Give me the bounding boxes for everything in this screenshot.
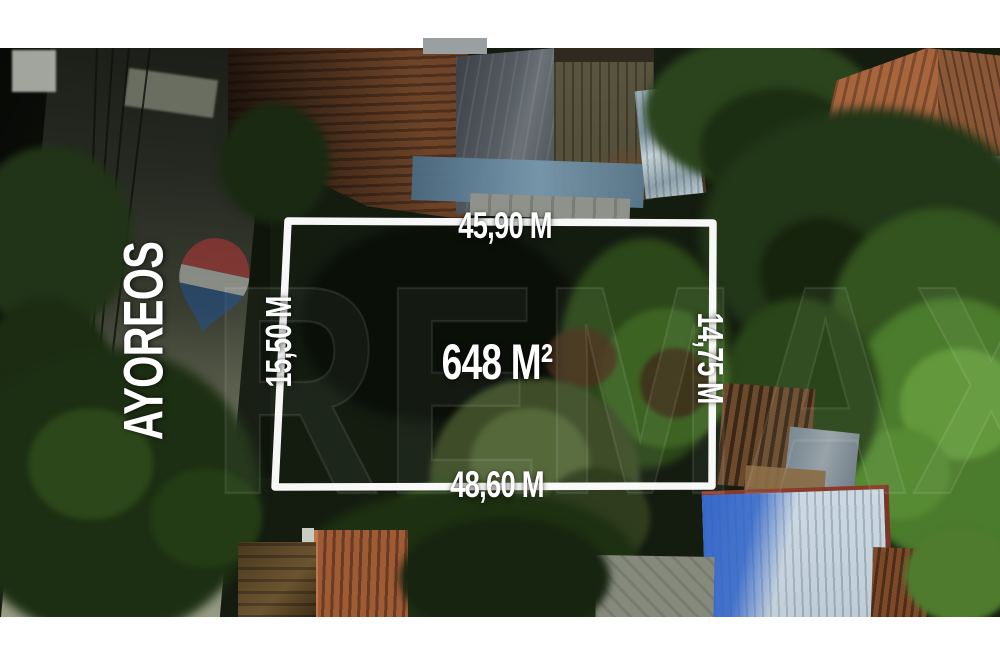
measurement-left: 15,50 M	[258, 280, 300, 403]
measurement-bottom: 48,60 M	[434, 464, 561, 506]
measurement-top: 45,90 M	[442, 205, 569, 247]
area-label: 648 M²	[422, 333, 572, 391]
measurement-right: 14,75 M	[689, 296, 731, 419]
street-name-label: AYOREOS	[111, 207, 176, 475]
listing-photo-card: REMAX 45,90 M 15,50 M 14,75 M 48,60 M 64…	[0, 0, 1000, 667]
